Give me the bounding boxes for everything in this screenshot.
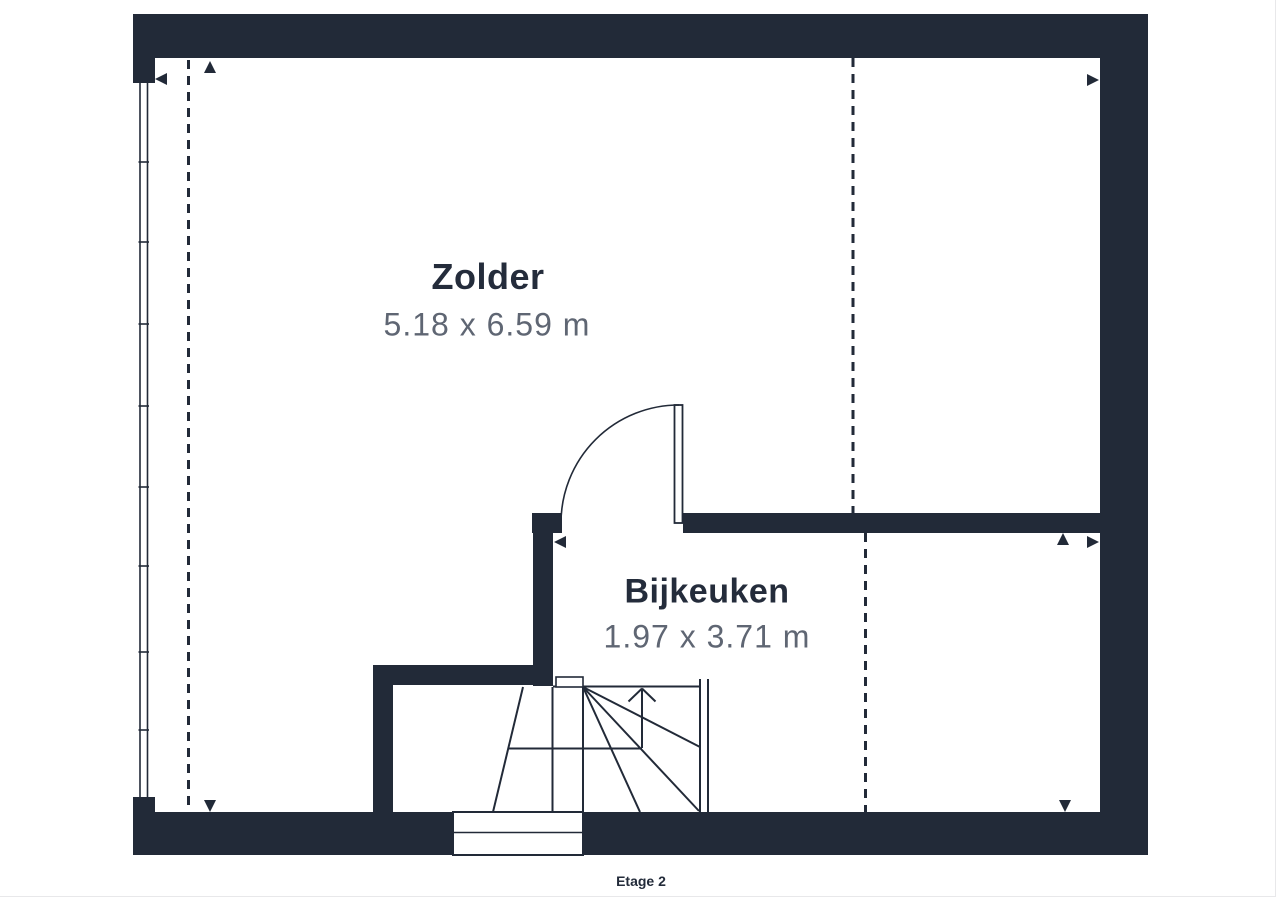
dimension-arrow-up-icon	[204, 61, 216, 73]
dimension-arrow-down-icon	[204, 800, 216, 812]
room-name-zolder: Zolder	[431, 256, 544, 298]
dimension-arrow-down-icon	[1059, 800, 1071, 812]
room-dimensions-bijkeuken: 1.97 x 3.71 m	[604, 619, 811, 656]
dimension-arrow-right-icon	[1087, 536, 1099, 548]
dimension-arrow-right-icon	[1087, 74, 1099, 86]
page-edge-bottom	[0, 896, 1276, 897]
floorplan-page: Zolder 5.18 x 6.59 m Bijkeuken 1.97 x 3.…	[0, 0, 1280, 905]
dimension-arrow-left-icon	[554, 536, 566, 548]
floor-label: Etage 2	[616, 873, 666, 889]
room-dimensions-zolder: 5.18 x 6.59 m	[384, 307, 591, 344]
page-edge-right	[1275, 0, 1276, 897]
dimension-arrow-left-icon	[155, 73, 167, 85]
staircase	[493, 677, 708, 812]
stair-bottom-protrusion	[453, 812, 583, 855]
floorplan-linework	[0, 0, 1280, 905]
dimension-arrow-up-icon	[1057, 533, 1069, 545]
window-left	[139, 83, 150, 797]
stair-top-tread	[556, 677, 583, 687]
room-name-bijkeuken: Bijkeuken	[624, 573, 789, 612]
door-bijkeuken	[561, 405, 683, 523]
